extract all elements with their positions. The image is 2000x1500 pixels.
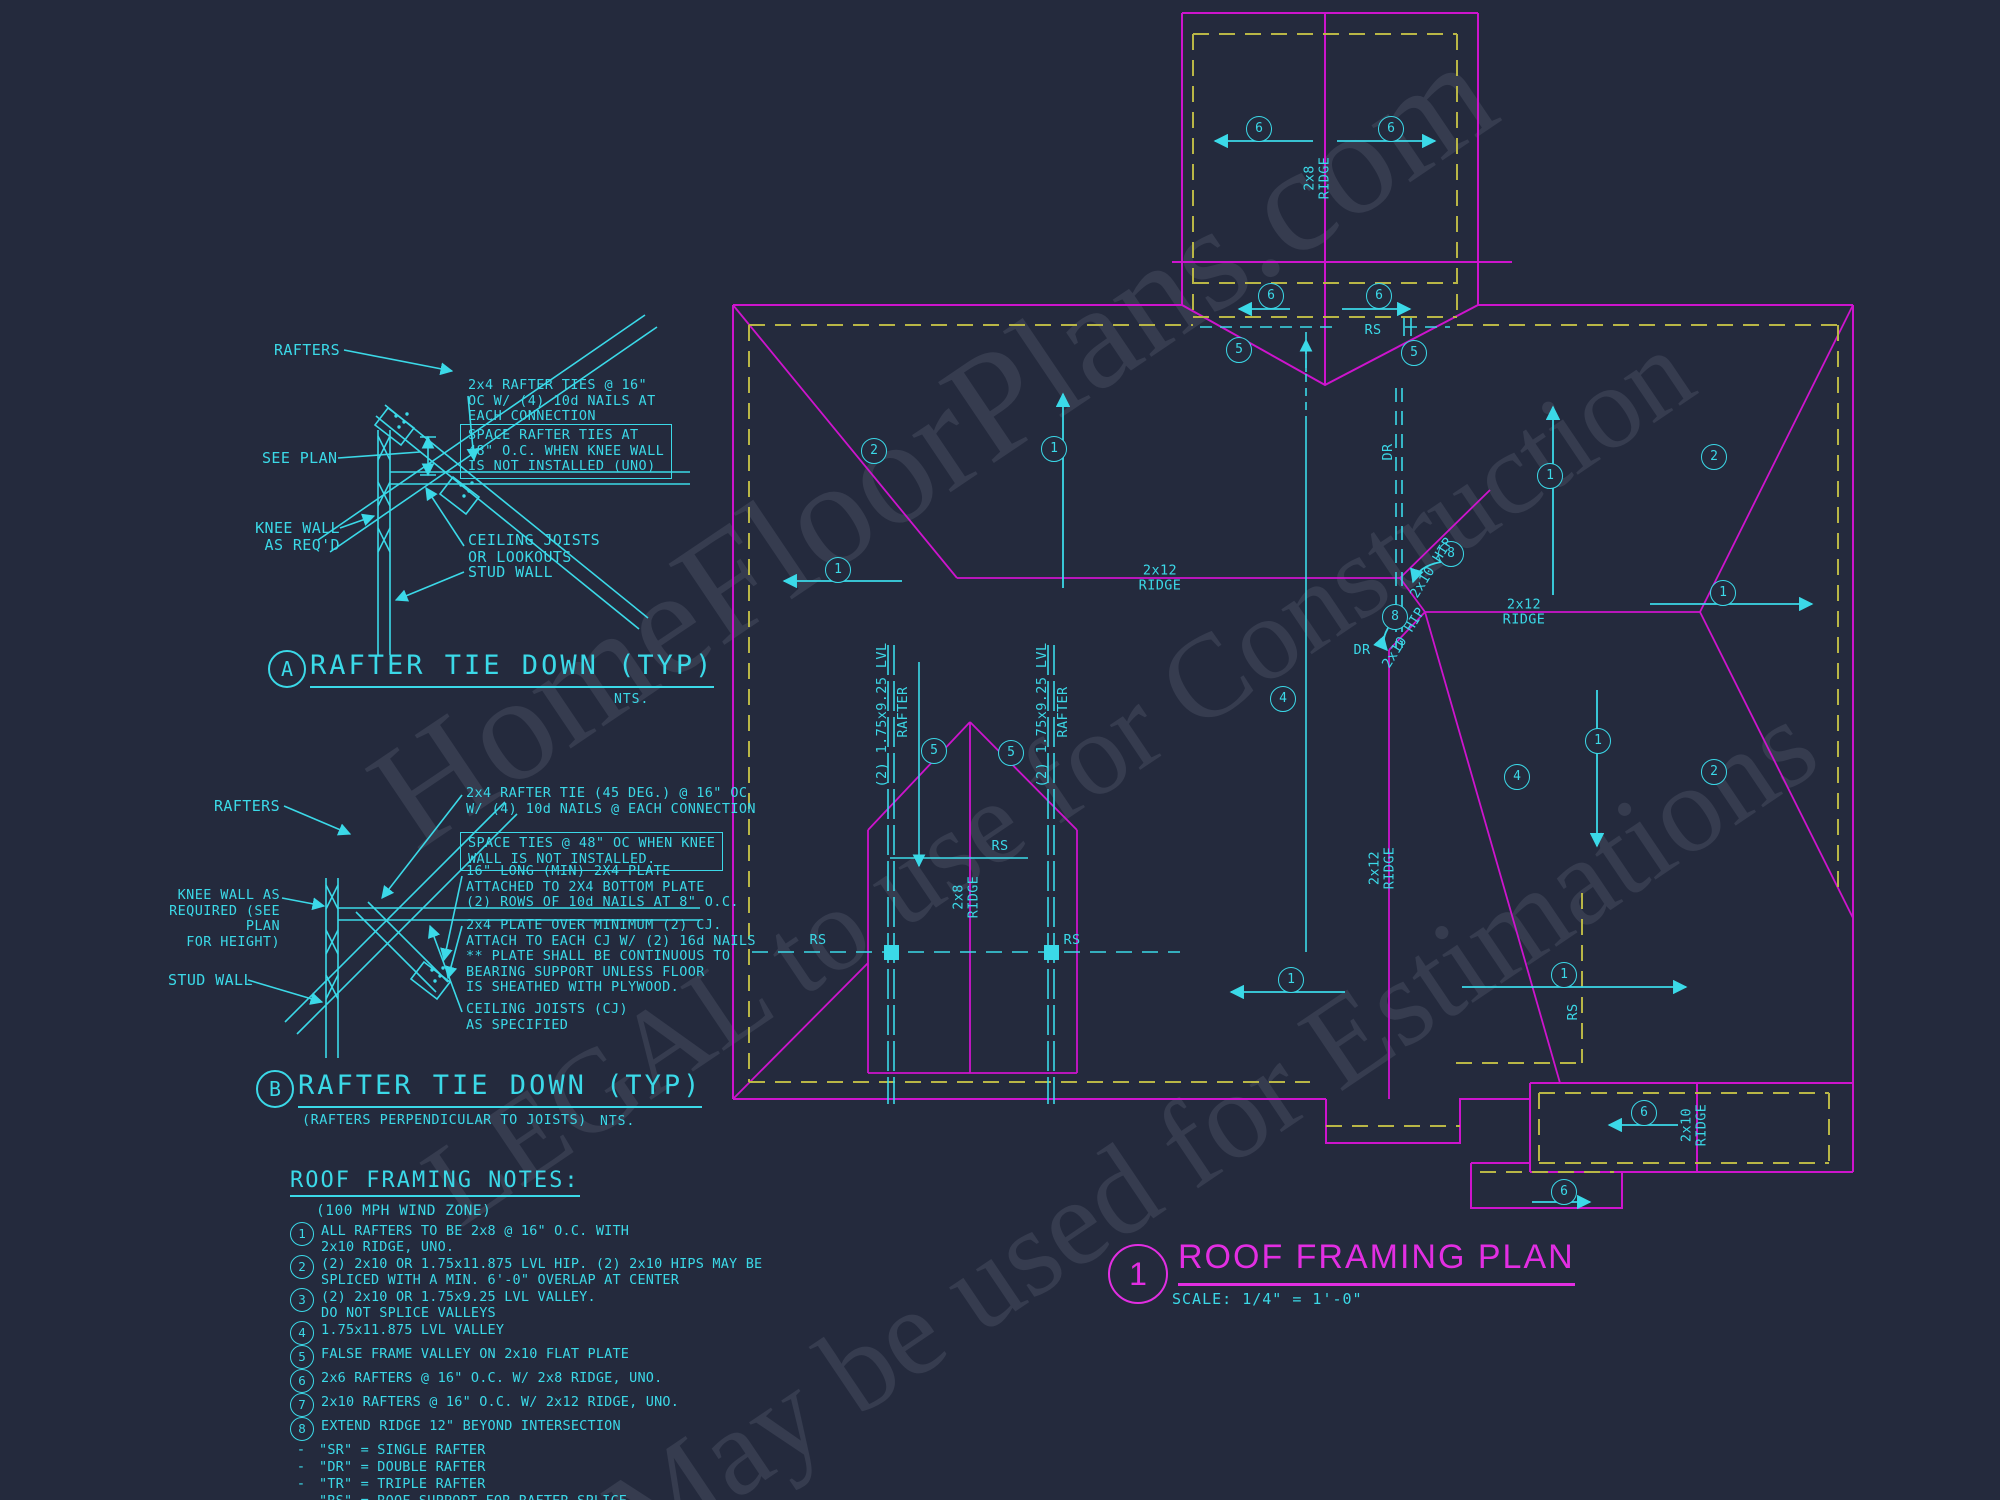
roof-framing-notes: ROOF FRAMING NOTES: (100 MPH WIND ZONE) …: [290, 1168, 790, 1500]
detail-b-note1: 2x4 RAFTER TIE (45 DEG.) @ 16" OC W/ (4)…: [466, 786, 756, 817]
plan-marker-5: 5: [998, 740, 1024, 766]
plan-marker-6: 6: [1551, 1179, 1577, 1205]
plan-title: ROOF FRAMING PLAN: [1178, 1238, 1575, 1286]
detail-b-nails: [430, 966, 444, 982]
plan-label: 2x10 RIDGE: [1680, 1104, 1709, 1147]
notes-item: 2(2) 2x10 OR 1.75x11.875 LVL HIP. (2) 2x…: [290, 1256, 790, 1288]
plan-callout: 1: [1108, 1244, 1168, 1304]
note-text: 1.75x11.875 LVL VALLEY: [321, 1322, 504, 1345]
plan-marker-1: 1: [1710, 580, 1736, 606]
notes-list: 1ALL RAFTERS TO BE 2x8 @ 16" O.C. WITH 2…: [290, 1223, 790, 1500]
plan-label: 2x12 RIDGE: [1503, 598, 1546, 627]
note-number: 7: [290, 1393, 314, 1417]
plan-marker-1: 1: [1278, 967, 1304, 993]
detail-b-callout: B: [256, 1070, 294, 1108]
plan-marker-6: 6: [1366, 283, 1392, 309]
detail-b-note3: 2x4 PLATE OVER MINIMUM (2) CJ. ATTACH TO…: [466, 918, 756, 996]
notes-item: 1ALL RAFTERS TO BE 2x8 @ 16" O.C. WITH 2…: [290, 1223, 790, 1255]
notes-item: 72x10 RAFTERS @ 16" O.C. W/ 2x12 RIDGE, …: [290, 1394, 790, 1417]
detail-b-subtitle: (RAFTERS PERPENDICULAR TO JOISTS): [302, 1112, 587, 1128]
plan-marker-6: 6: [1631, 1100, 1657, 1126]
plan-label: DR: [1353, 643, 1370, 658]
note-dash: -: [290, 1459, 312, 1475]
plan-marker-6: 6: [1246, 116, 1272, 142]
detail-a-see-plan-label: SEE PLAN: [262, 450, 337, 467]
notes-item: 5FALSE FRAME VALLEY ON 2x10 FLAT PLATE: [290, 1346, 790, 1369]
note-number: 6: [290, 1369, 314, 1393]
notes-dash-item: -"SR" = SINGLE RAFTER: [290, 1442, 790, 1458]
notes-dash-item: -"TR" = TRIPLE RAFTER: [290, 1476, 790, 1492]
detail-a-note1: 2x4 RAFTER TIES @ 16" OC W/ (4) 10d NAIL…: [468, 378, 656, 425]
note-dash: -: [290, 1442, 312, 1458]
detail-a-callout: A: [268, 650, 306, 688]
detail-a-knee-wall-label: KNEE WALL AS REQ'D: [238, 520, 340, 554]
blueprint-page: HomeFloorPlans.com LEGAL to use for Cons…: [0, 0, 2000, 1500]
note-number: 1: [290, 1222, 314, 1246]
detail-a-scale: NTS.: [614, 692, 649, 707]
plan-label: 2x12 RIDGE: [1139, 564, 1182, 593]
plan-label: 2x12 RIDGE: [1368, 847, 1397, 890]
plan-label: RAFTER: [1056, 686, 1071, 737]
note-number: 3: [290, 1288, 314, 1312]
plan-label: RS: [991, 839, 1008, 854]
note-number: 4: [290, 1321, 314, 1345]
plan-label: RS: [809, 933, 826, 948]
note-text: 2x6 RAFTERS @ 16" O.C. W/ 2x8 RIDGE, UNO…: [321, 1370, 662, 1393]
plan-label: RS: [1063, 933, 1080, 948]
detail-a-ceiling-label: CEILING JOISTS OR LOOKOUTS: [468, 532, 600, 566]
note-text: EXTEND RIDGE 12" BEYOND INTERSECTION: [321, 1418, 621, 1441]
plan-label: DR: [1381, 443, 1396, 460]
detail-b-scale: NTS.: [600, 1114, 635, 1129]
note-text: "DR" = DOUBLE RAFTER: [319, 1459, 486, 1475]
plan-label: 2x8 RIDGE: [1303, 157, 1332, 200]
note-text: (2) 2x10 OR 1.75x9.25 LVL VALLEY. DO NOT…: [321, 1289, 596, 1321]
detail-b-note2: 16" LONG (MIN) 2X4 PLATE ATTACHED TO 2X4…: [466, 864, 739, 911]
plan-label: RAFTER: [896, 686, 911, 737]
plan-marker-1: 1: [1551, 962, 1577, 988]
plan-marker-2: 2: [861, 438, 887, 464]
detail-a-rafters-label: RAFTERS: [240, 342, 340, 359]
plan-marker-1: 1: [1041, 436, 1067, 462]
plan-marker-2: 2: [1701, 759, 1727, 785]
notes-wind-zone: (100 MPH WIND ZONE): [316, 1203, 790, 1219]
plan-label: (2) 1.75x9.25 LVL: [1035, 643, 1050, 788]
plan-label: RS: [1566, 1003, 1581, 1020]
detail-b-stud-label: STUD WALL: [168, 972, 253, 989]
plan-marker-1: 1: [1585, 728, 1611, 754]
note-dash: -: [290, 1476, 312, 1492]
plan-marker-4: 4: [1270, 686, 1296, 712]
notes-item: 41.75x11.875 LVL VALLEY: [290, 1322, 790, 1345]
note-text: ALL RAFTERS TO BE 2x8 @ 16" O.C. WITH 2x…: [321, 1223, 629, 1255]
plan-marker-2: 2: [1701, 444, 1727, 470]
plan-marker-5: 5: [1401, 340, 1427, 366]
detail-a-stud-label: STUD WALL: [468, 564, 553, 581]
detail-b-note4: CEILING JOISTS (CJ) AS SPECIFIED: [466, 1002, 628, 1033]
plan-marker-5: 5: [1226, 337, 1252, 363]
note-dash: -: [290, 1493, 312, 1500]
plan-marker-6: 6: [1378, 116, 1404, 142]
plan-arrows: [784, 141, 1812, 1202]
plan-marker-1: 1: [1537, 463, 1563, 489]
notes-item: 8EXTEND RIDGE 12" BEYOND INTERSECTION: [290, 1418, 790, 1441]
plan-label: RS: [1364, 323, 1381, 338]
note-text: "SR" = SINGLE RAFTER: [319, 1442, 486, 1458]
note-text: FALSE FRAME VALLEY ON 2x10 FLAT PLATE: [321, 1346, 629, 1369]
detail-b-title: RAFTER TIE DOWN (TYP): [298, 1070, 702, 1108]
detail-a-art: [318, 315, 690, 655]
plan-cyan-lines: [752, 318, 1450, 1104]
note-text: 2x10 RAFTERS @ 16" O.C. W/ 2x12 RIDGE, U…: [321, 1394, 679, 1417]
plan-label: (2) 1.75x9.25 LVL: [875, 643, 890, 788]
notes-dash-item: -"DR" = DOUBLE RAFTER: [290, 1459, 790, 1475]
note-number: 8: [290, 1417, 314, 1441]
notes-dash-item: -"RS" = ROOF SUPPORT FOR RAFTER SPLICE: [290, 1493, 790, 1500]
notes-item: 3(2) 2x10 OR 1.75x9.25 LVL VALLEY. DO NO…: [290, 1289, 790, 1321]
note-number: 5: [290, 1345, 314, 1369]
plan-marker-5: 5: [921, 738, 947, 764]
plan-marker-4: 4: [1504, 764, 1530, 790]
plan-label: 2x8 RIDGE: [952, 876, 981, 919]
plan-marker-1: 1: [825, 557, 851, 583]
plan-marker-6: 6: [1258, 283, 1284, 309]
detail-b-rafters-label: RAFTERS: [180, 798, 280, 815]
detail-a-title: RAFTER TIE DOWN (TYP): [310, 650, 714, 688]
detail-b-knee-wall-label: KNEE WALL AS REQUIRED (SEE PLAN FOR HEIG…: [148, 888, 280, 950]
plan-scale: SCALE: 1/4" = 1'-0": [1172, 1290, 1363, 1308]
notes-title: ROOF FRAMING NOTES:: [290, 1168, 580, 1197]
note-number: 2: [290, 1255, 314, 1279]
note-text: "RS" = ROOF SUPPORT FOR RAFTER SPLICE: [319, 1493, 627, 1500]
detail-a-boxed-note: SPACE RAFTER TIES AT 48" O.C. WHEN KNEE …: [460, 424, 672, 479]
notes-item: 62x6 RAFTERS @ 16" O.C. W/ 2x8 RIDGE, UN…: [290, 1370, 790, 1393]
note-text: "TR" = TRIPLE RAFTER: [319, 1476, 486, 1492]
note-text: (2) 2x10 OR 1.75x11.875 LVL HIP. (2) 2x1…: [321, 1256, 762, 1288]
plan-overhang: [749, 34, 1838, 1172]
plan-walls: [733, 13, 1853, 1208]
